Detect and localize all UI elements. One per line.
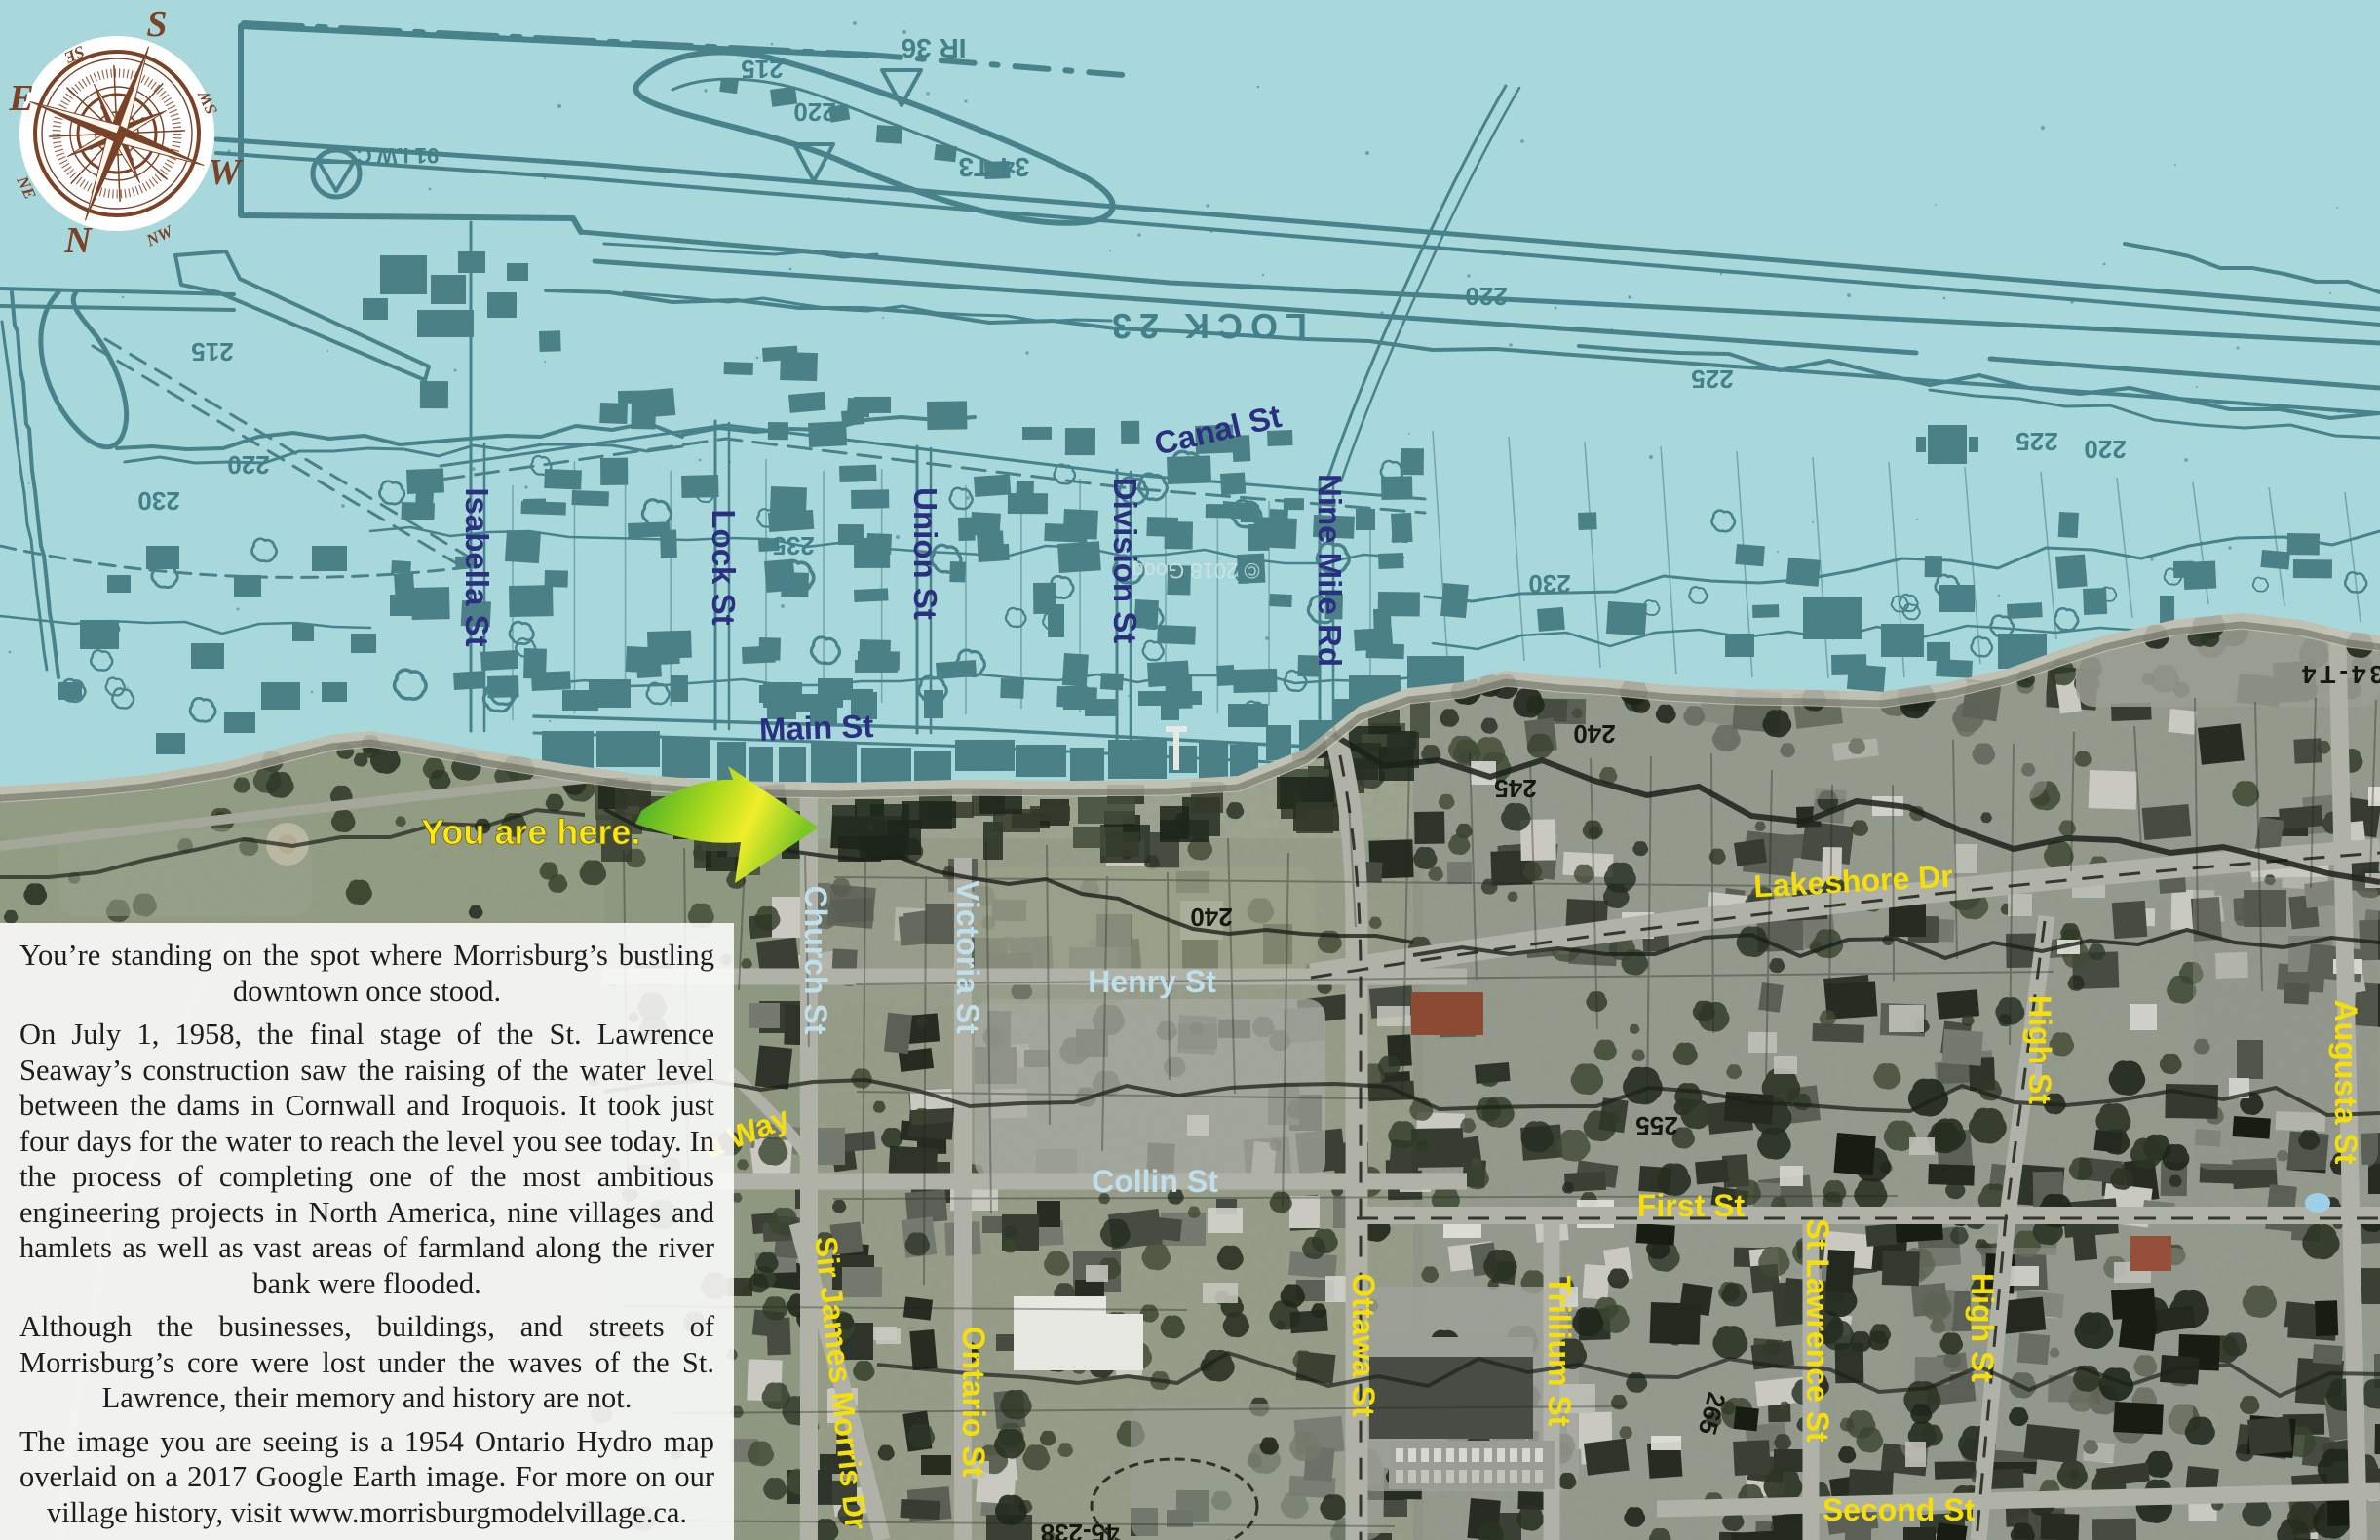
svg-text:215: 215 [741,55,783,84]
svg-text:IR 36: IR 36 [902,33,967,63]
svg-text:45-238: 45-238 [1041,1519,1120,1540]
svg-text:Augusta St: Augusta St [2328,1000,2363,1165]
svg-text:230: 230 [1528,569,1570,598]
svg-text:Henry St: Henry St [1088,964,1216,999]
svg-text:Main St: Main St [758,708,874,748]
svg-text:E: E [8,78,33,119]
svg-text:240: 240 [1573,719,1615,749]
svg-text:215: 215 [191,337,233,366]
svg-text:W: W [208,152,244,193]
svg-text:Ontario St: Ontario St [956,1327,991,1478]
svg-text:© 2018 Goog: © 2018 Goog [1132,558,1259,583]
svg-text:220: 220 [227,450,269,480]
svg-text:Victoria St: Victoria St [950,880,985,1034]
svg-text:220: 220 [793,97,835,127]
svg-text:First St: First St [1637,1188,1746,1223]
svg-text:Isabella St: Isabella St [459,487,495,646]
svg-text:S: S [146,4,167,45]
svg-text:255: 255 [1635,1111,1677,1140]
svg-text:240: 240 [1190,903,1232,932]
svg-text:Collin St: Collin St [1092,1164,1218,1199]
svg-text:91 I.W.C.: 91 I.W.C. [351,143,439,168]
svg-text:220: 220 [1465,282,1507,311]
svg-text:Union St: Union St [907,487,943,620]
svg-text:220: 220 [2084,435,2126,464]
svg-text:LOCK 23: LOCK 23 [1104,306,1307,346]
svg-text:34-T4: 34-T4 [2298,660,2380,689]
svg-text:225: 225 [2015,427,2057,456]
svg-text:230: 230 [137,486,179,516]
svg-text:St Lawrence St: St Lawrence St [1800,1218,1835,1443]
svg-text:34-T3: 34-T3 [958,152,1029,182]
svg-text:245: 245 [1494,774,1536,803]
svg-text:235: 235 [772,531,814,560]
svg-text:225: 225 [1691,365,1733,394]
svg-text:Lock St: Lock St [706,509,742,625]
svg-text:Ottawa St: Ottawa St [1346,1273,1381,1417]
svg-text:Second St: Second St [1823,1492,1976,1527]
svg-text:You are here.: You are here. [421,812,640,852]
svg-text:N: N [63,220,93,261]
svg-text:Nine Mile Rd: Nine Mile Rd [1312,474,1348,667]
svg-text:High St: High St [1965,1273,2000,1382]
svg-text:High St: High St [2022,995,2057,1104]
svg-text:Trillium St: Trillium St [1542,1276,1577,1427]
svg-text:Church St: Church St [798,886,833,1035]
svg-text:Division St: Division St [1107,478,1143,644]
